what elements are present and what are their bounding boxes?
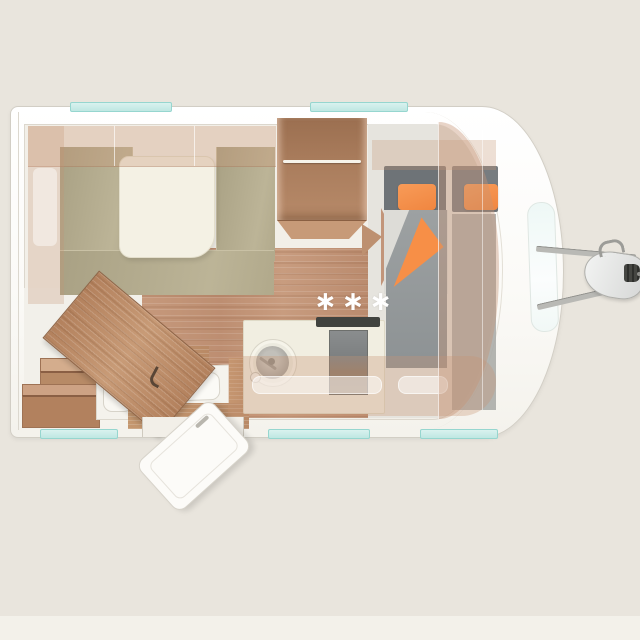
wardrobe-rail xyxy=(283,160,361,163)
top-window-strip-2 xyxy=(310,102,408,112)
bed-panel-edge xyxy=(482,130,483,410)
overhead-lockers-top xyxy=(28,126,276,167)
bottom-window-strip-2 xyxy=(268,429,370,439)
door-handle-icon xyxy=(147,366,167,388)
dinette-table xyxy=(119,156,215,258)
rear-wall-line xyxy=(18,112,19,430)
overhead-locker-slot xyxy=(33,168,57,246)
locker-divider xyxy=(114,126,115,166)
caravan-floorplan: ∗∗∗ xyxy=(0,0,640,640)
overlay-slot xyxy=(252,376,382,394)
bottom-light-band xyxy=(0,616,640,640)
front-window xyxy=(527,202,560,333)
bottom-window-strip-3 xyxy=(420,429,498,439)
cooker-lid-strip xyxy=(316,317,380,327)
top-window-strip-1 xyxy=(70,102,172,112)
locker-divider xyxy=(194,126,195,166)
heater-symbol: ∗∗∗ xyxy=(314,288,410,316)
step-lower-front xyxy=(22,395,100,428)
bottom-window-strip-1 xyxy=(40,429,118,439)
pillow-left xyxy=(398,184,436,210)
wardrobe xyxy=(277,118,367,220)
